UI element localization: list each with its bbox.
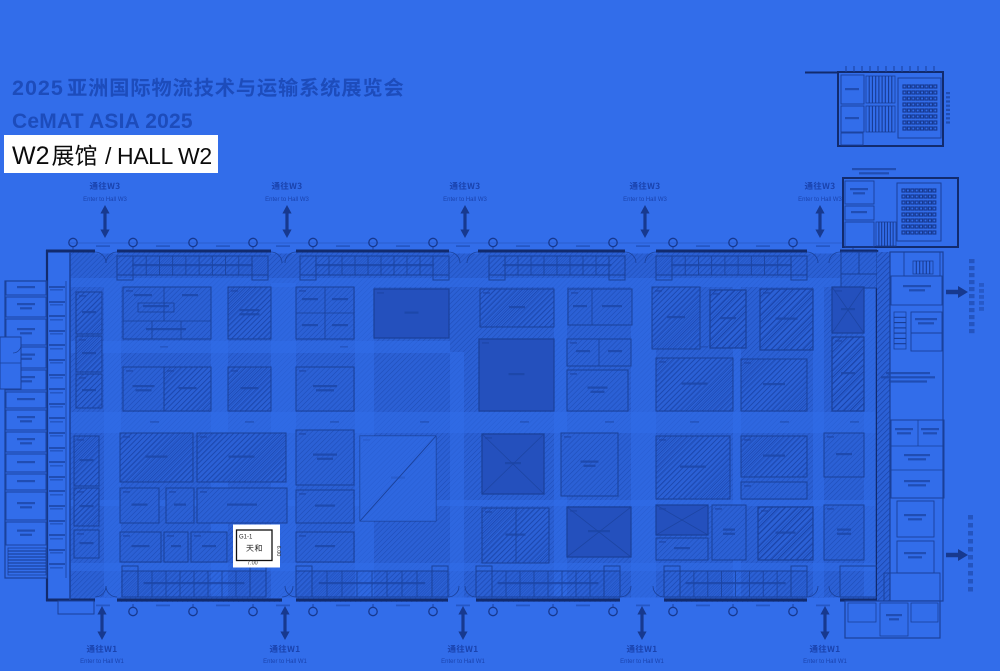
svg-text:6.00: 6.00 <box>275 546 281 557</box>
svg-text:CeMAT ASIA 2025: CeMAT ASIA 2025 <box>12 110 193 133</box>
svg-text:W2: W2 <box>12 142 50 170</box>
svg-text:7.00: 7.00 <box>247 561 258 567</box>
svg-text:Enter to Hall W1: Enter to Hall W1 <box>263 659 307 665</box>
svg-text:Enter to Hall W1: Enter to Hall W1 <box>80 659 124 665</box>
svg-text:Enter to Hall W3: Enter to Hall W3 <box>623 197 667 203</box>
svg-text:2025: 2025 <box>12 76 64 100</box>
svg-text:Enter to Hall W1: Enter to Hall W1 <box>620 659 664 665</box>
svg-text:Enter to Hall W3: Enter to Hall W3 <box>798 197 842 203</box>
svg-text:Enter to Hall W3: Enter to Hall W3 <box>265 197 309 203</box>
svg-text:Enter to Hall W3: Enter to Hall W3 <box>443 197 487 203</box>
svg-text:/ HALL W2: / HALL W2 <box>105 143 212 169</box>
svg-text:Enter to Hall W1: Enter to Hall W1 <box>441 659 485 665</box>
svg-text:G1-1: G1-1 <box>239 535 253 541</box>
svg-text:Enter to Hall W3: Enter to Hall W3 <box>83 197 127 203</box>
svg-text:Enter to Hall W1: Enter to Hall W1 <box>803 659 847 665</box>
